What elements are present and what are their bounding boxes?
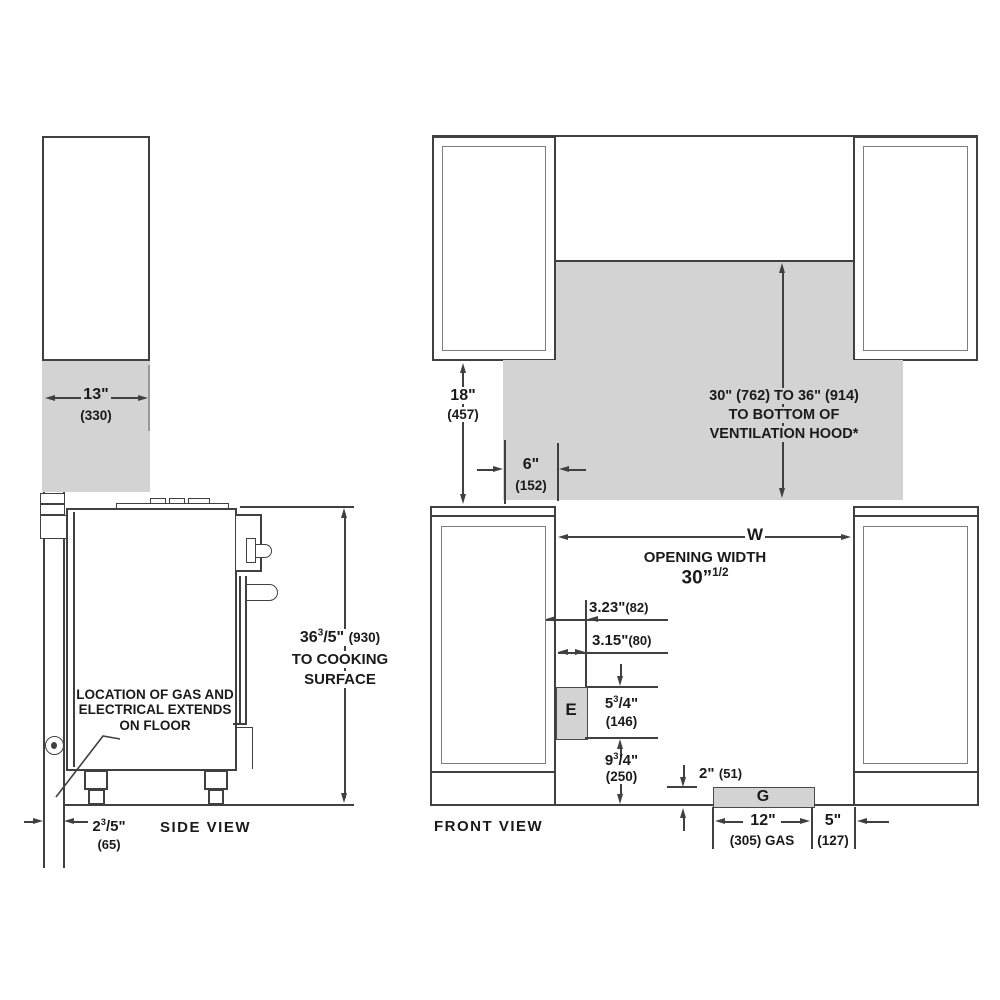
toe-kick-line <box>853 771 979 773</box>
dim-arrow-down-icon <box>617 676 623 686</box>
control-knob-icon <box>255 544 272 558</box>
dim-upper-clearance-metric: (457) <box>433 408 493 423</box>
burner-knob-profile <box>169 498 185 504</box>
gas-connection-box <box>40 504 65 515</box>
dimension-extension-line <box>585 600 587 690</box>
door-bottom-line <box>233 723 247 725</box>
dim-arrow-up-icon <box>617 739 623 749</box>
dim-cabinet-depth: 13" <box>66 386 126 404</box>
dim-side-clearance-metric: (152) <box>501 479 561 494</box>
dim-arrow-right-icon <box>33 818 43 824</box>
dim-electrical-height-metric: (146) <box>585 715 658 730</box>
dimension-line <box>569 469 586 471</box>
dim-hood-clearance: VENTILATION HOOD* <box>684 427 884 443</box>
dim-arrow-up-icon <box>680 808 686 818</box>
burner-knob-profile <box>150 498 166 504</box>
dim-hood-clearance: TO BOTTOM OF <box>684 408 884 424</box>
dimension-line <box>585 686 658 688</box>
dim-height-note: SURFACE <box>270 672 410 689</box>
dim-gas-height: 2" (51) <box>699 765 759 783</box>
upper-cabinet-left-door <box>442 146 546 351</box>
dim-arrow-up-icon <box>460 363 466 373</box>
dim-hood-clearance: 30" (762) TO 36" (914) <box>684 389 884 405</box>
wall-line <box>63 492 65 868</box>
countertop-line <box>853 515 979 517</box>
dim-electrical-offset1: 3.23"(82) <box>589 599 679 617</box>
dim-height-to-cooktop: 363/5" (930) <box>270 629 410 647</box>
dim-arrow-down-icon <box>779 488 785 498</box>
dim-arrow-right-icon <box>575 649 585 655</box>
front-view-label: FRONT VIEW <box>434 818 543 835</box>
dim-arrow-left-icon <box>857 818 867 824</box>
dim-height-note: TO COOKING <box>270 652 410 669</box>
dimension-line <box>477 469 494 471</box>
dimension-line <box>782 273 784 488</box>
gas-connection-box <box>40 493 65 504</box>
dimension-line <box>667 786 697 788</box>
base-cabinet-right-door <box>863 526 968 764</box>
burner-knob-profile <box>188 498 210 504</box>
opening-width-letter: W <box>725 526 785 545</box>
dim-arrow-down-icon <box>617 794 623 804</box>
dim-arrow-right-icon <box>841 534 851 540</box>
dim-wall-gap: 23/5" <box>84 817 134 836</box>
toe-kick-line <box>430 771 556 773</box>
leader-line <box>50 725 130 805</box>
dimension-line <box>546 619 668 621</box>
dim-gas-width-metric: (305) GAS <box>713 834 811 849</box>
dimension-line <box>781 821 801 823</box>
dim-electrical-floor-offset-metric: (250) <box>585 770 658 785</box>
base-cabinet-left-door <box>441 526 546 764</box>
dim-gas-offset: 5" <box>813 812 853 830</box>
storage-drawer <box>237 727 253 769</box>
upper-cabinet-right-door <box>863 146 968 351</box>
dim-arrow-right-icon <box>138 395 148 401</box>
dim-arrow-left-icon <box>715 818 725 824</box>
dim-arrow-left-icon <box>558 534 568 540</box>
electrical-outlet-letter: E <box>556 701 586 720</box>
dim-electrical-floor-offset: 93/4" <box>585 751 658 770</box>
range-leg <box>204 770 228 790</box>
dim-arrow-down-icon <box>460 494 466 504</box>
side-wall-cabinet <box>42 136 150 361</box>
dim-arrow-right-icon <box>800 818 810 824</box>
dim-upper-clearance: 18" <box>433 387 493 405</box>
countertop-line <box>430 515 556 517</box>
dim-wall-gap-metric: (65) <box>84 838 134 852</box>
dim-gas-offset-metric: (127) <box>811 834 855 849</box>
dim-side-clearance: 6" <box>501 456 561 474</box>
dim-arrow-up-icon <box>341 508 347 518</box>
dim-arrow-left-icon <box>558 649 568 655</box>
dim-arrow-left-icon <box>588 616 598 622</box>
gas-inlet-letter: G <box>713 788 813 806</box>
dim-arrow-down-icon <box>341 793 347 803</box>
side-view-label: SIDE VIEW <box>160 819 251 836</box>
opening-width-value: 30”1/2 <box>625 567 785 589</box>
dimension-extension-line <box>240 506 354 508</box>
wall-line <box>43 492 45 868</box>
range-leg-foot <box>208 789 224 805</box>
dim-electrical-offset2: 3.15"(80) <box>592 632 682 650</box>
dim-cabinet-depth-metric: (330) <box>66 409 126 424</box>
oven-door-line <box>239 576 241 723</box>
installation-diagram: 13" (330) <box>0 0 1000 1000</box>
dim-arrow-left-icon <box>546 616 556 622</box>
dimension-line <box>867 821 889 823</box>
backsplash-zone-upper <box>556 262 853 360</box>
dim-arrow-left-icon <box>45 395 55 401</box>
opening-width-label: OPENING WIDTH <box>625 550 785 567</box>
dim-arrow-left-icon <box>64 818 74 824</box>
dimension-extension-line <box>148 365 150 431</box>
floor-line <box>430 804 979 806</box>
door-handle <box>246 584 278 601</box>
dimension-line <box>683 818 685 831</box>
dimension-line <box>568 536 842 538</box>
dim-electrical-height: 53/4" <box>585 694 658 713</box>
side-clearance-zone <box>42 361 150 492</box>
dim-arrow-up-icon <box>779 263 785 273</box>
